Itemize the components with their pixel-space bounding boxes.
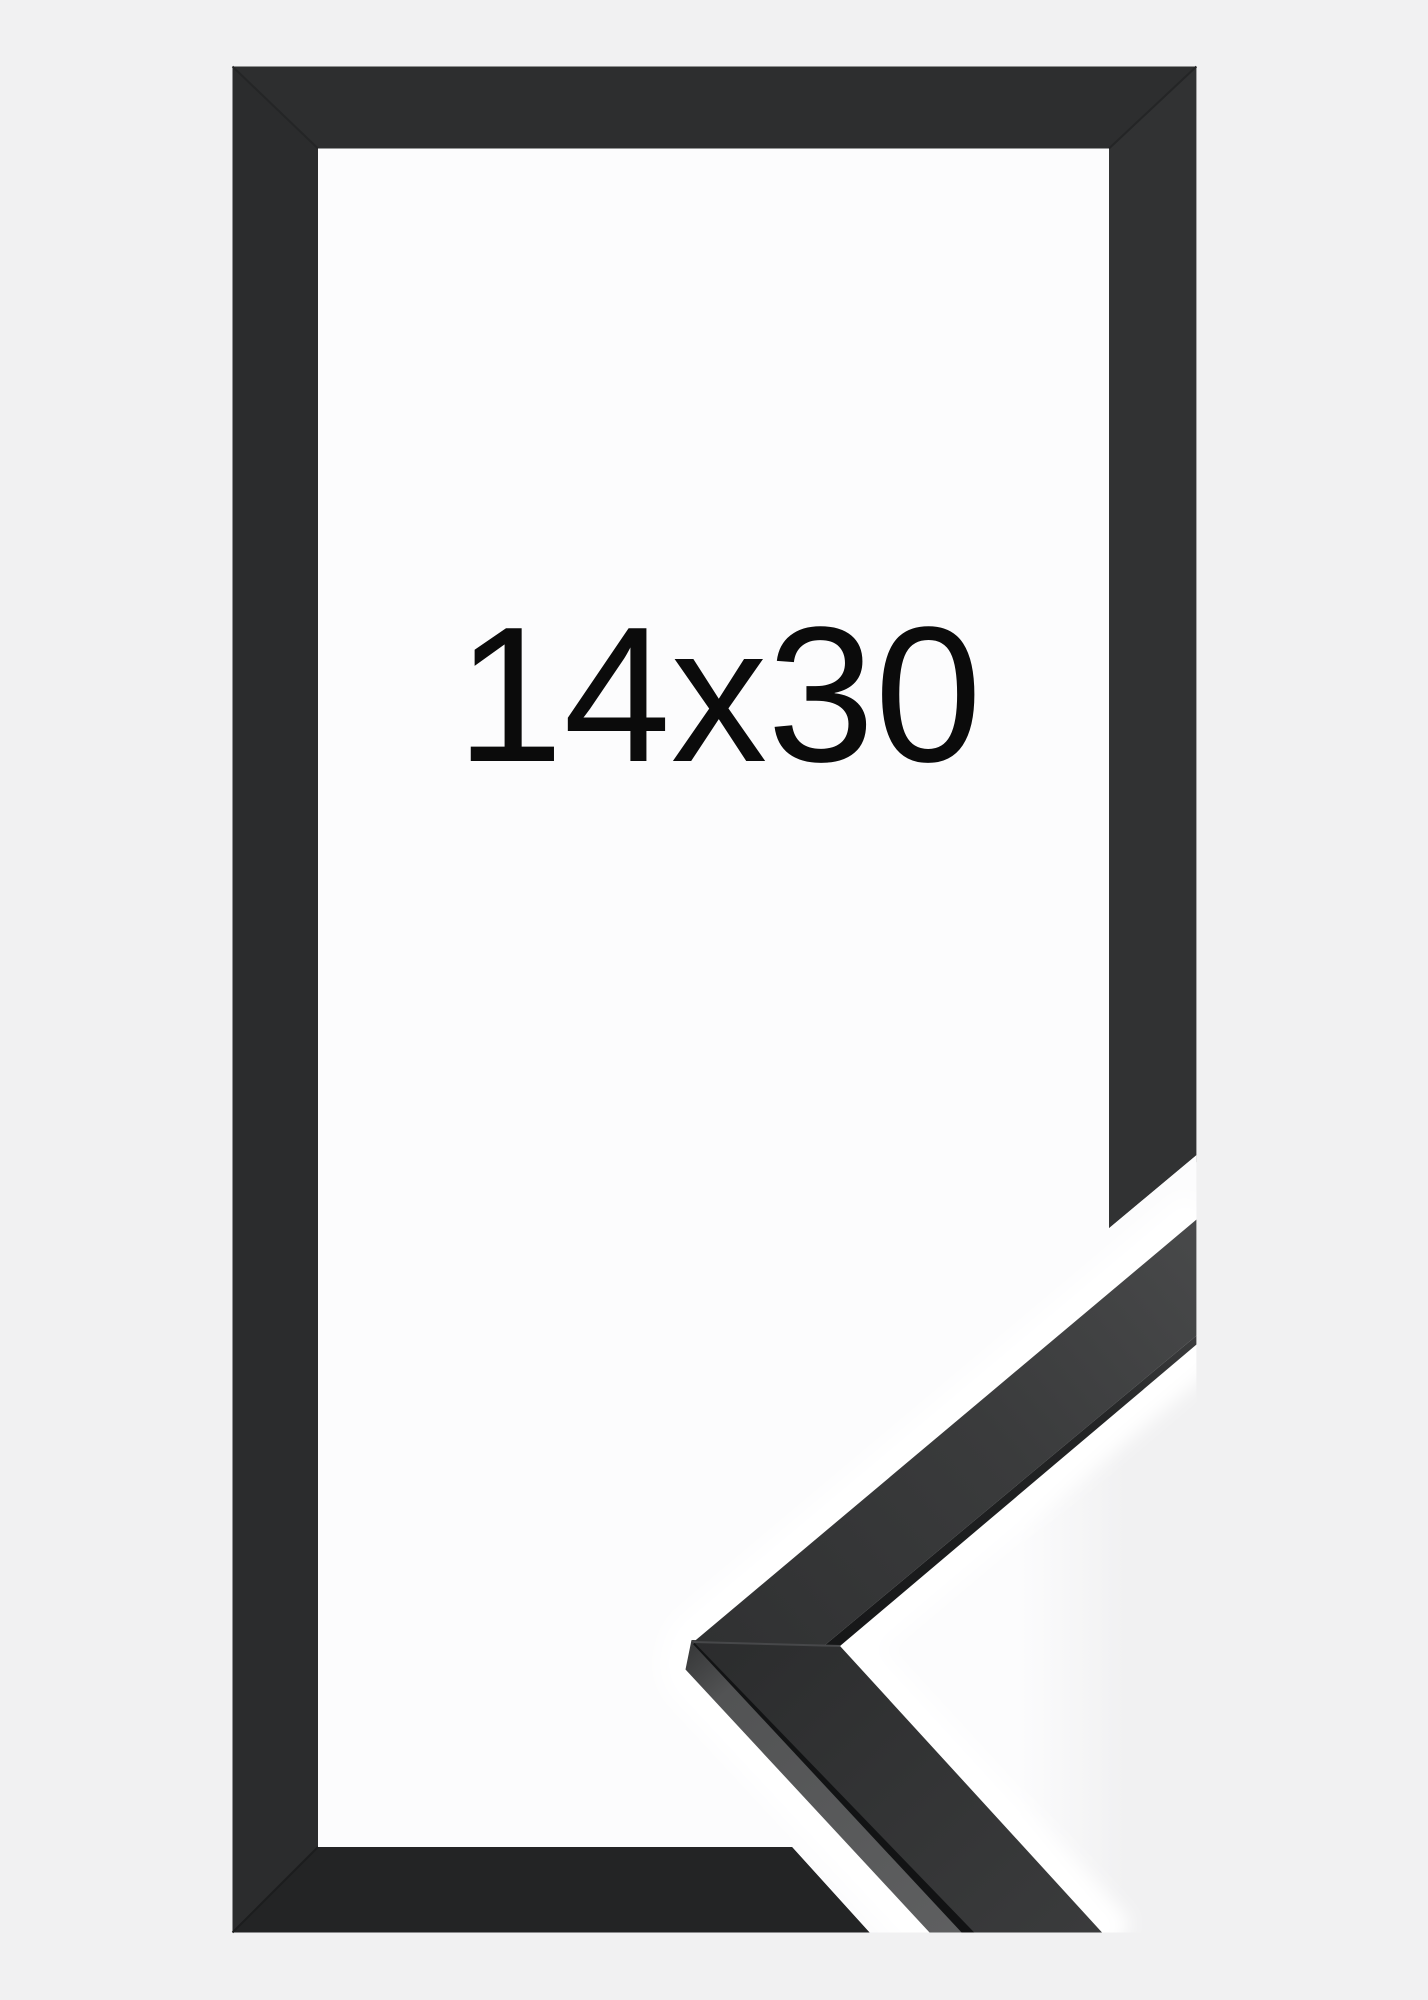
svg-text:14x30: 14x30 [456, 586, 982, 802]
